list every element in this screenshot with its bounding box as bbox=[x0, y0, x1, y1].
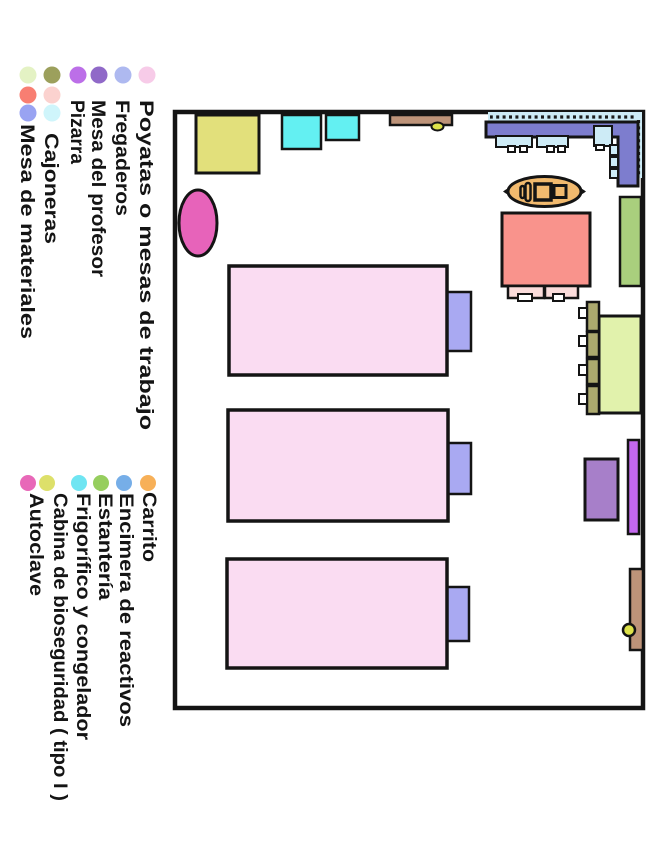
svg-text:Encimera de reactivos: Encimera de reactivos bbox=[115, 493, 136, 727]
svg-text:Pizarra: Pizarra bbox=[66, 100, 87, 164]
svg-text:Cabina de bioseguridad ( tipo: Cabina de bioseguridad ( tipo I ) bbox=[49, 493, 70, 801]
svg-text:Frigorífico y congelador: Frigorífico y congelador bbox=[72, 493, 93, 741]
svg-text:Mesa del profesor: Mesa del profesor bbox=[87, 100, 108, 278]
svg-text:Fregaderos: Fregaderos bbox=[111, 100, 132, 216]
svg-text:Poyatas o mesas de trabajo: Poyatas o mesas de trabajo bbox=[135, 100, 156, 430]
svg-text:Estantería: Estantería bbox=[94, 493, 115, 601]
svg-text:Carrito: Carrito bbox=[138, 492, 159, 562]
svg-text:Cajoneras: Cajoneras bbox=[40, 133, 61, 244]
svg-text:Mesa de materiales: Mesa de materiales bbox=[16, 124, 37, 339]
svg-text:Autoclave: Autoclave bbox=[25, 493, 46, 596]
